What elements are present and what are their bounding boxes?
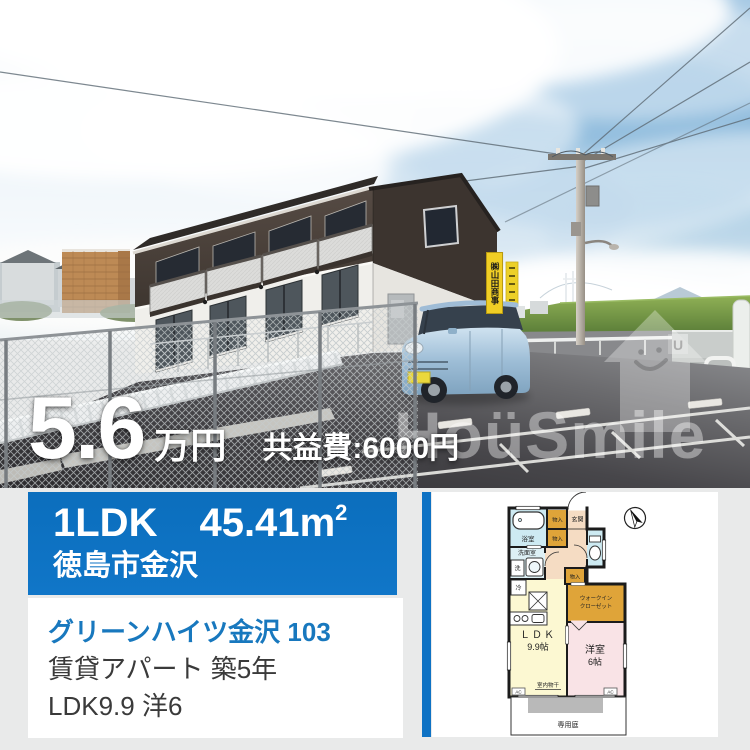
transformer: [586, 186, 599, 206]
layout-area-line: 1LDK 45.41m2: [53, 500, 397, 546]
floor-area: 45.41m2: [199, 500, 347, 546]
area-unit-exponent: 2: [335, 502, 347, 524]
location: 徳島市金沢: [53, 549, 397, 583]
property-name-link[interactable]: グリーンハイツ金沢 103: [48, 614, 393, 651]
label-storage3: 物入: [570, 573, 580, 581]
property-photo: U ㈱山田商事 HoüSmile 5.6 万円 共益費:6000円: [0, 0, 750, 488]
closet-door: [571, 583, 585, 586]
area-unit: m: [300, 500, 336, 546]
compass-north-icon: [621, 504, 649, 532]
label-ldk: ＬＤＫ: [520, 630, 556, 641]
gable-window: [424, 206, 458, 247]
toilet-tank: [590, 536, 601, 542]
layout-type: 1LDK: [53, 500, 157, 546]
label-fridge: 冷: [515, 584, 521, 592]
price-overlay: 5.6 万円 共益費:6000円: [28, 384, 459, 472]
label-western: 洋室: [585, 643, 605, 656]
property-type-age: 賃貸アパート 築5年: [48, 651, 393, 688]
bathtub: [513, 512, 544, 529]
yellow-company-sign: ㈱山田商事: [486, 252, 503, 314]
listing-page: { "photo": { "price_value": "5.6", "pric…: [0, 0, 750, 750]
label-storage1: 物入: [552, 516, 562, 524]
label-ac-left: AC: [515, 690, 522, 695]
label-ldk-size: 9.9帖: [527, 641, 549, 652]
label-garden: 専用庭: [558, 720, 579, 729]
sliding-door: [566, 626, 569, 644]
divider-bar: [422, 492, 431, 737]
label-wic2: クローゼット: [580, 602, 612, 610]
walk-in-closet: [567, 584, 625, 622]
price-value: 5.6: [28, 384, 144, 472]
label-entrance: 玄関: [571, 516, 583, 524]
distant-shed-2: [530, 301, 548, 314]
label-ac-right: AC: [607, 690, 614, 695]
private-garden: [511, 697, 626, 735]
maintenance-fee: 共益費:6000円: [262, 423, 459, 467]
terrace-slab: [528, 698, 603, 713]
label-washroom: 洗面室: [518, 549, 536, 557]
property-detail-card: グリーンハイツ金沢 103 賃貸アパート 築5年 LDK9.9 洋6: [28, 598, 403, 738]
kitchen-counter: [510, 612, 547, 625]
layout-area-box: 1LDK 45.41m2 徳島市金沢: [28, 492, 397, 595]
toilet-bowl: [590, 546, 601, 560]
label-western-size: 6帖: [588, 656, 602, 667]
label-drying: 室内物干: [537, 681, 560, 689]
floor-plan-panel: 浴室 物入 物入 玄関 洗面室 洗 冷 物入 ウォークイン クローゼット ＬＤＫ…: [432, 492, 718, 737]
property-rooms: LDK9.9 洋6: [48, 688, 393, 725]
label-storage2: 物入: [552, 535, 562, 543]
price-unit: 万円: [154, 417, 226, 469]
label-washer: 洗: [514, 565, 520, 573]
watermark-logo-letter: U: [673, 337, 683, 353]
label-wic1: ウォークイン: [580, 594, 612, 602]
area-value: 45.41: [199, 500, 299, 546]
listing-info-section: 1LDK 45.41m2 徳島市金沢 グリーンハイツ金沢 103 賃貸アパート …: [0, 488, 750, 750]
label-bath: 浴室: [522, 534, 536, 543]
floor-plan: 浴室 物入 物入 玄関 洗面室 洗 冷 物入 ウォークイン クローゼット ＬＤＫ…: [432, 492, 718, 737]
